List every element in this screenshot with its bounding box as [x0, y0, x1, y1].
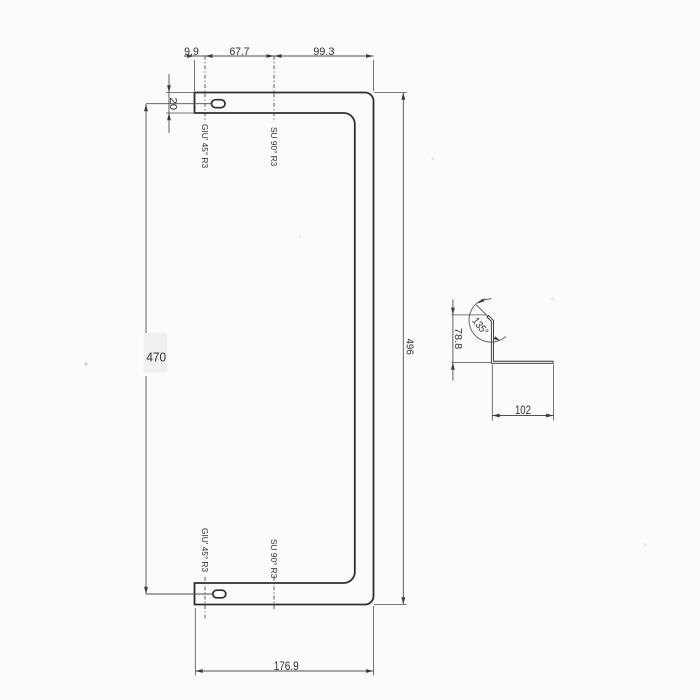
svg-text:GIU' 45° R3: GIU' 45° R3	[200, 124, 210, 168]
svg-text:99.3: 99.3	[313, 46, 334, 58]
svg-text:GIU' 45° R3: GIU' 45° R3	[200, 528, 210, 572]
svg-text:SU 90° R3: SU 90° R3	[269, 539, 279, 579]
svg-text:470: 470	[146, 350, 166, 364]
svg-text:176.9: 176.9	[274, 661, 299, 673]
svg-text:67.7: 67.7	[230, 46, 250, 58]
svg-text:9.9: 9.9	[184, 46, 199, 58]
svg-text:78.8: 78.8	[452, 328, 464, 350]
svg-text:496: 496	[403, 339, 414, 356]
svg-text:SU 90° R3: SU 90° R3	[269, 127, 279, 167]
svg-text:102: 102	[515, 405, 531, 417]
svg-text:20: 20	[167, 97, 179, 110]
